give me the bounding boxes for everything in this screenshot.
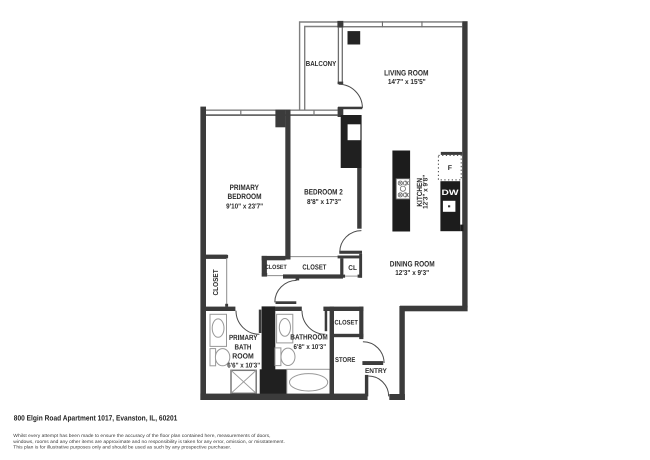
svg-text:9'10" x 23'7": 9'10" x 23'7" [226, 201, 263, 210]
svg-text:BATHROOM: BATHROOM [290, 333, 327, 342]
svg-text:STORE: STORE [335, 357, 356, 364]
svg-text:CLOSET: CLOSET [302, 263, 326, 272]
svg-text:Whilst every attempt has been: Whilst every attempt has been made to en… [13, 433, 270, 438]
svg-text:PRIMARY: PRIMARY [230, 183, 260, 192]
svg-text:8'8" x 17'3": 8'8" x 17'3" [307, 197, 341, 206]
svg-text:ROOM: ROOM [232, 351, 254, 360]
svg-text:DW: DW [442, 188, 460, 197]
svg-text:BATH: BATH [235, 342, 252, 351]
svg-text:BALCONY: BALCONY [306, 59, 337, 68]
svg-text:windows, rooms and any other i: windows, rooms and any other items are a… [13, 439, 285, 444]
svg-text:PRIMARY: PRIMARY [229, 333, 257, 342]
svg-text:12'3" x 9'8": 12'3" x 9'8" [422, 175, 429, 209]
svg-text:This plan is for illustrative: This plan is for illustrative purposes o… [13, 444, 231, 449]
svg-text:CLOSET: CLOSET [265, 264, 287, 271]
svg-text:14'7" x 15'5": 14'7" x 15'5" [388, 77, 426, 86]
svg-text:12'3" x 9'3": 12'3" x 9'3" [395, 268, 429, 277]
svg-text:CLOSET: CLOSET [211, 269, 220, 296]
svg-text:ENTRY: ENTRY [365, 368, 387, 375]
svg-text:BEDROOM 2: BEDROOM 2 [304, 188, 343, 197]
svg-text:800 Elgin Road Apartment 1017,: 800 Elgin Road Apartment 1017, Evanston,… [14, 413, 178, 422]
svg-text:CL: CL [348, 265, 357, 272]
svg-text:F: F [448, 165, 453, 172]
svg-text:6'6" x 10'3": 6'6" x 10'3" [227, 363, 260, 370]
svg-text:CLOSET: CLOSET [334, 320, 358, 327]
svg-text:6'8" x 10'3": 6'8" x 10'3" [294, 344, 327, 351]
svg-text:BEDROOM: BEDROOM [228, 192, 262, 201]
